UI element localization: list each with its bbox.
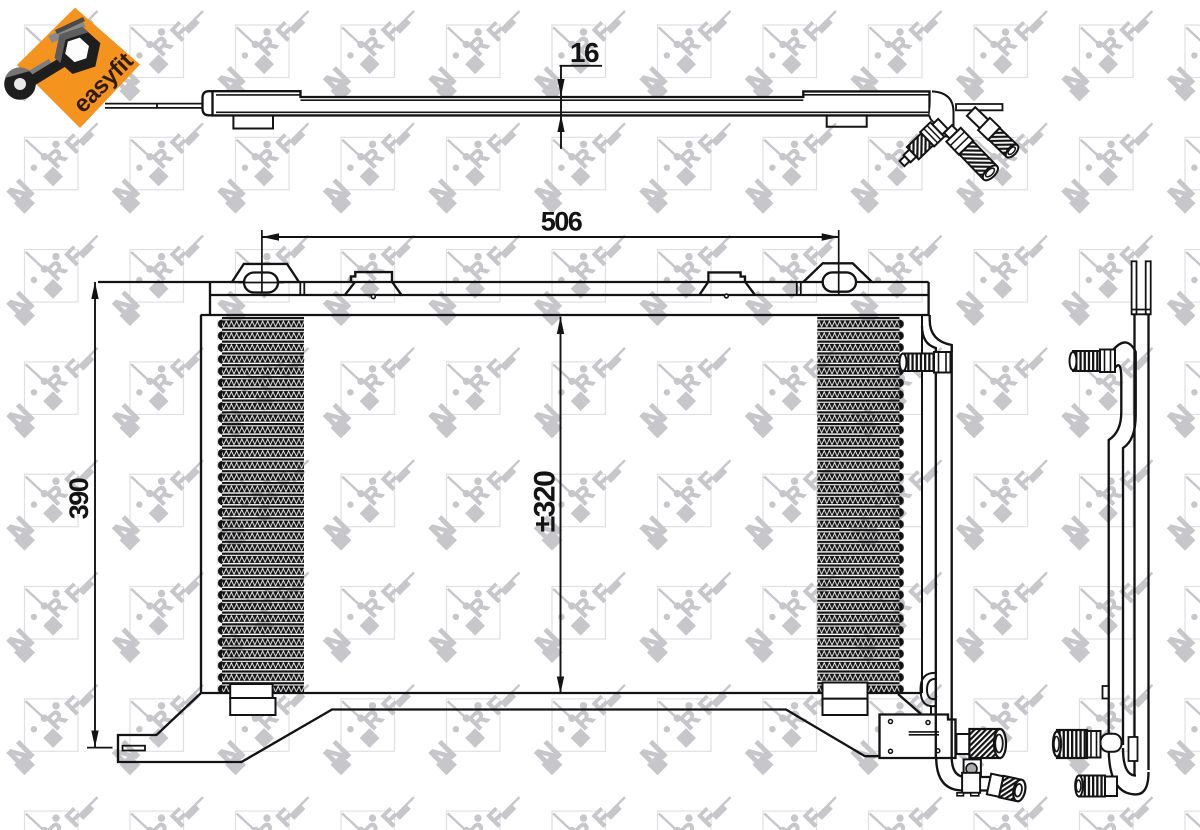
svg-text:506: 506 <box>541 207 583 237</box>
svg-text:390: 390 <box>64 478 94 519</box>
svg-text:±320: ±320 <box>529 471 562 532</box>
svg-text:16: 16 <box>570 37 599 68</box>
